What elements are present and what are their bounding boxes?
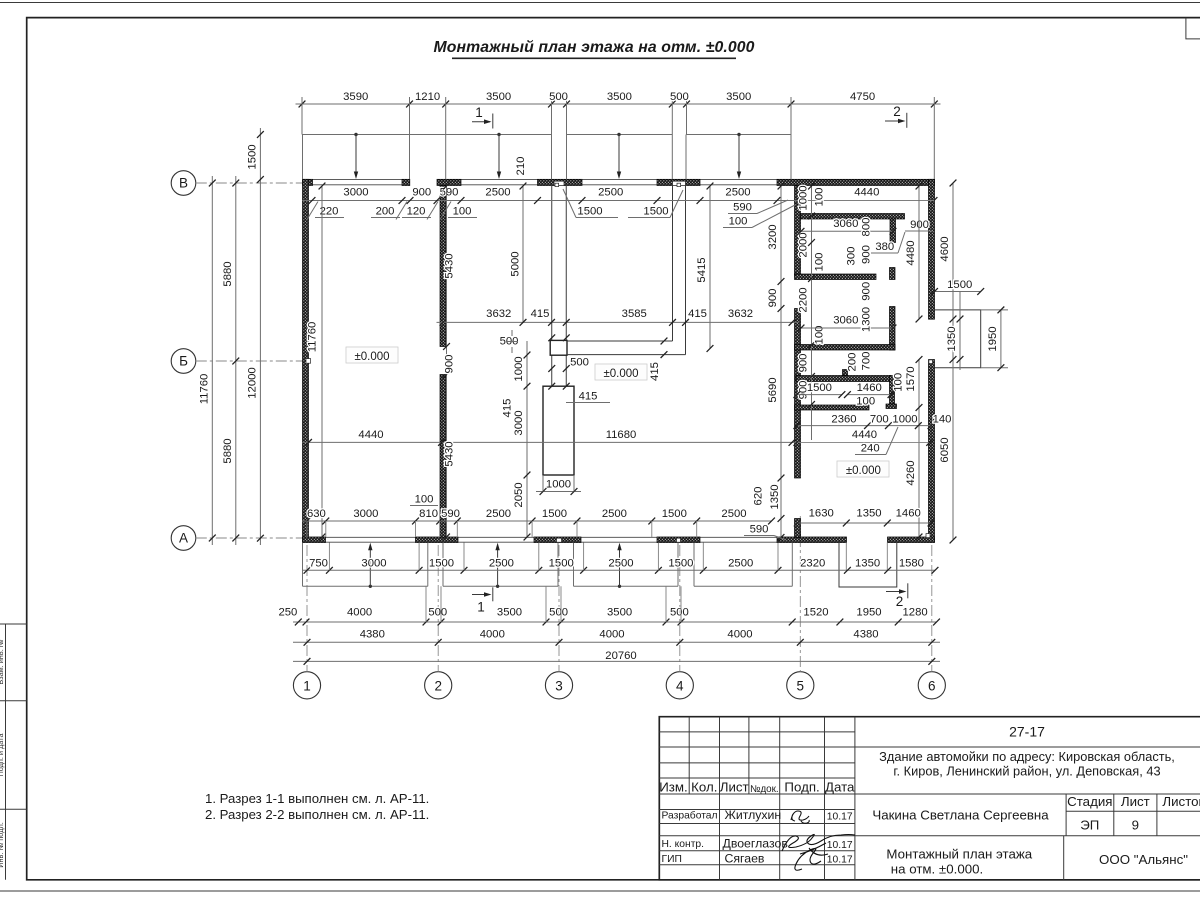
svg-text:20760: 20760 [605,650,636,662]
svg-text:10.17: 10.17 [827,840,853,851]
svg-text:3060: 3060 [833,315,858,327]
svg-text:200: 200 [376,206,395,218]
svg-text:3632: 3632 [486,308,511,320]
svg-text:2500: 2500 [721,508,746,520]
svg-text:2. Разрез 2-2 выполнен см. л.: 2. Разрез 2-2 выполнен см. л. АР-11. [205,807,429,822]
svg-text:Дата: Дата [825,779,855,794]
svg-text:100: 100 [892,373,904,392]
svg-text:500: 500 [570,357,589,369]
svg-text:100: 100 [813,253,825,272]
svg-text:10.17: 10.17 [827,811,853,822]
svg-text:5430: 5430 [443,441,455,466]
svg-text:800: 800 [861,218,873,237]
svg-text:415: 415 [531,308,550,320]
svg-text:4000: 4000 [727,629,752,641]
svg-text:ГИП: ГИП [662,854,682,865]
svg-text:1500: 1500 [668,558,693,570]
svg-text:1350: 1350 [769,484,781,509]
svg-text:1580: 1580 [899,558,924,570]
svg-text:500: 500 [428,607,447,619]
svg-text:3590: 3590 [343,91,368,103]
svg-text:2360: 2360 [831,413,856,425]
svg-text:2: 2 [434,678,442,693]
svg-text:4440: 4440 [854,187,879,199]
svg-text:1460: 1460 [857,382,882,394]
svg-text:1000: 1000 [513,356,525,381]
svg-text:1000: 1000 [546,479,571,491]
svg-text:1520: 1520 [803,607,828,619]
svg-text:Стадия: Стадия [1067,794,1112,809]
svg-text:1500: 1500 [662,508,687,520]
svg-text:630: 630 [307,508,326,520]
svg-text:380: 380 [875,241,894,253]
svg-text:11680: 11680 [606,429,637,441]
svg-text:2500: 2500 [725,187,750,199]
svg-text:210: 210 [515,157,527,176]
svg-text:1350: 1350 [855,558,880,570]
svg-text:4000: 4000 [480,629,505,641]
svg-text:1280: 1280 [903,607,928,619]
svg-text:3500: 3500 [726,91,751,103]
svg-text:Лист: Лист [1121,794,1150,809]
svg-text:27-17: 27-17 [1009,724,1045,740]
svg-text:4440: 4440 [852,429,877,441]
svg-text:1. Разрез 1-1 выполнен см. л.: 1. Разрез 1-1 выполнен см. л. АР-11. [205,791,429,806]
svg-text:100: 100 [415,494,434,506]
svg-text:2500: 2500 [489,558,514,570]
svg-text:2500: 2500 [598,187,623,199]
svg-text:100: 100 [813,188,825,207]
svg-text:1500: 1500 [429,558,454,570]
svg-text:1350: 1350 [946,326,958,351]
svg-text:3500: 3500 [607,91,632,103]
svg-text:3060: 3060 [833,218,858,230]
svg-text:3200: 3200 [767,224,779,249]
svg-text:200: 200 [847,353,859,372]
svg-text:300: 300 [846,247,858,266]
svg-text:3500: 3500 [607,607,632,619]
svg-text:3000: 3000 [513,410,525,435]
svg-text:Монтажный план этажа на отм. ±: Монтажный план этажа на отм. ±0.000 [434,39,755,56]
svg-text:3500: 3500 [497,607,522,619]
svg-text:500: 500 [670,607,689,619]
svg-text:1950: 1950 [987,326,999,351]
svg-text:5415: 5415 [696,257,708,282]
svg-text:Сягаев: Сягаев [725,851,765,865]
svg-text:900: 900 [412,187,431,199]
svg-text:2500: 2500 [486,508,511,520]
svg-text:700: 700 [870,413,889,425]
svg-text:5880: 5880 [222,438,234,463]
svg-text:1500: 1500 [577,206,602,218]
svg-text:1000: 1000 [892,413,917,425]
svg-text:2050: 2050 [513,482,525,507]
svg-text:2: 2 [893,104,901,119]
svg-text:1500: 1500 [542,508,567,520]
svg-text:ЭП: ЭП [1080,818,1099,833]
svg-text:415: 415 [649,362,661,381]
svg-text:1460: 1460 [896,508,921,520]
svg-text:Разработал: Разработал [662,810,718,822]
svg-text:4750: 4750 [850,91,875,103]
svg-text:100: 100 [453,206,472,218]
svg-text:1500: 1500 [807,382,832,394]
svg-text:900: 900 [861,282,873,301]
svg-text:3585: 3585 [622,308,647,320]
svg-text:700: 700 [861,352,873,371]
svg-text:4380: 4380 [853,629,878,641]
svg-text:Подп.: Подп. [784,779,819,794]
svg-text:1630: 1630 [809,508,834,520]
svg-text:4440: 4440 [358,429,383,441]
svg-text:1210: 1210 [415,91,440,103]
svg-text:±0.000: ±0.000 [354,351,389,363]
svg-text:11760: 11760 [307,322,319,353]
svg-text:Двоеглазов: Двоеглазов [723,836,788,850]
svg-text:900: 900 [443,355,455,374]
svg-text:900: 900 [767,289,779,308]
svg-text:750: 750 [309,558,328,570]
svg-text:590: 590 [733,202,752,214]
svg-text:Монтажный план этажа: Монтажный план этажа [886,847,1032,862]
svg-text:1: 1 [477,600,485,615]
svg-text:11760: 11760 [199,374,211,405]
svg-text:3632: 3632 [728,308,753,320]
svg-text:500: 500 [549,607,568,619]
svg-text:4: 4 [676,678,684,693]
svg-text:1300: 1300 [861,307,873,332]
svg-text:100: 100 [729,216,748,228]
svg-text:г. Киров, Ленинский район, ул.: г. Киров, Ленинский район, ул. Деповская… [893,763,1160,778]
svg-text:5: 5 [797,678,805,693]
svg-text:1500: 1500 [947,279,972,291]
svg-text:590: 590 [750,524,769,536]
svg-text:500: 500 [549,91,568,103]
svg-text:2500: 2500 [602,508,627,520]
svg-text:Листов: Листов [1162,794,1200,809]
svg-text:А: А [179,531,188,546]
svg-text:3: 3 [555,678,563,693]
svg-text:4000: 4000 [347,607,372,619]
svg-text:3000: 3000 [353,508,378,520]
svg-text:900: 900 [861,245,873,264]
svg-text:900: 900 [798,354,810,373]
svg-text:1500: 1500 [549,558,574,570]
svg-text:2200: 2200 [798,287,810,312]
svg-text:9: 9 [1132,818,1139,833]
svg-text:810: 810 [419,508,438,520]
svg-text:590: 590 [441,508,460,520]
svg-text:4380: 4380 [360,629,385,641]
svg-text:500: 500 [670,91,689,103]
svg-text:2320: 2320 [800,558,825,570]
svg-text:1500: 1500 [643,206,668,218]
svg-text:Подп. и дата: Подп. и дата [0,733,5,777]
svg-text:12000: 12000 [247,367,259,398]
svg-text:5690: 5690 [767,377,779,402]
svg-text:2000: 2000 [798,232,810,257]
svg-text:3000: 3000 [361,558,386,570]
svg-text:4260: 4260 [905,460,917,485]
svg-text:140: 140 [933,413,952,425]
svg-text:415: 415 [579,391,598,403]
svg-text:ООО "Альянс": ООО "Альянс" [1099,852,1188,867]
svg-text:4000: 4000 [599,629,624,641]
svg-text:Н. контр.: Н. контр. [662,839,705,850]
svg-text:±0.000: ±0.000 [846,465,881,477]
svg-text:10.17: 10.17 [827,855,853,866]
svg-text:2500: 2500 [608,558,633,570]
svg-text:120: 120 [407,206,426,218]
svg-text:5000: 5000 [509,251,521,276]
svg-text:Инв. № подл.: Инв. № подл. [0,822,5,867]
svg-text:2: 2 [896,594,904,609]
svg-text:Здание автомойки по адресу: Ки: Здание автомойки по адресу: Кировская об… [879,749,1175,764]
svg-text:620: 620 [753,487,765,506]
svg-text:4600: 4600 [939,236,951,261]
svg-text:№док.: №док. [750,784,779,795]
svg-text:на отм. ±0.000.: на отм. ±0.000. [891,862,983,877]
svg-text:1: 1 [475,105,483,120]
svg-text:В: В [179,176,188,191]
svg-text:5880: 5880 [222,261,234,286]
svg-text:2500: 2500 [485,187,510,199]
svg-text:3000: 3000 [343,187,368,199]
svg-text:±0.000: ±0.000 [603,368,638,380]
svg-text:Чакина Светлана Сергеевна: Чакина Светлана Сергеевна [872,808,1049,823]
svg-text:415: 415 [688,308,707,320]
svg-text:590: 590 [440,187,459,199]
svg-text:1570: 1570 [905,366,917,391]
svg-text:2500: 2500 [728,558,753,570]
svg-text:1350: 1350 [856,508,881,520]
svg-text:4480: 4480 [905,240,917,265]
svg-text:250: 250 [278,607,297,619]
svg-text:415: 415 [502,399,514,418]
svg-text:Изм.: Изм. [659,779,688,794]
svg-text:240: 240 [861,443,880,455]
svg-text:1: 1 [303,678,311,693]
svg-text:1950: 1950 [856,607,881,619]
svg-text:Б: Б [179,354,188,369]
svg-text:1000: 1000 [798,185,810,210]
svg-text:Кол.: Кол. [691,779,717,794]
svg-text:Лист: Лист [720,779,749,794]
svg-text:6050: 6050 [939,437,951,462]
svg-text:3500: 3500 [486,91,511,103]
svg-text:1500: 1500 [247,144,259,169]
svg-text:Житлухин: Житлухин [725,808,782,822]
svg-text:100: 100 [856,396,875,408]
svg-text:Взам. инв. №: Взам. инв. № [0,639,5,684]
svg-text:5430: 5430 [443,253,455,278]
svg-text:6: 6 [928,678,936,693]
